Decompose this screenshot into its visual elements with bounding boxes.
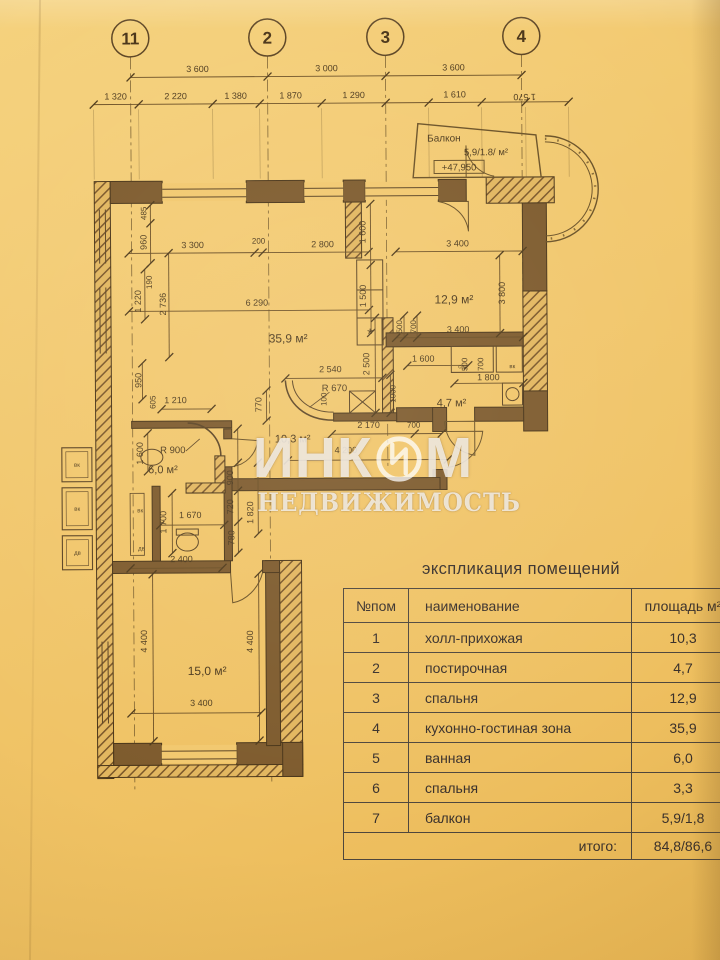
- dim-label: 1 820: [245, 501, 255, 524]
- dim-label: 960: [138, 235, 148, 250]
- axis-number: 2: [263, 29, 273, 48]
- radius-label-r900: R 900: [160, 445, 185, 456]
- explication-row: 7балкон5,9/1,8: [344, 803, 720, 833]
- balcony-label: Балкон: [427, 133, 461, 144]
- dim-label: 3 800: [497, 282, 507, 305]
- dim-label: 500: [395, 320, 404, 334]
- room-area: 10,3: [632, 623, 720, 653]
- entrance-door: [447, 431, 483, 467]
- room-area: 5,9/1,8: [632, 803, 720, 833]
- dim-line: [149, 570, 158, 745]
- dim-line: [90, 98, 573, 109]
- room-number: 1: [344, 623, 409, 653]
- room-area: 12,9: [632, 683, 720, 713]
- room-explication: экспликация помещений №помнаименованиепл…: [343, 560, 699, 860]
- dim-label: 700: [476, 357, 485, 371]
- room-number: 5: [344, 743, 409, 773]
- dim-label: 3 000: [315, 63, 338, 73]
- dim-line: [366, 200, 375, 337]
- axis-bubble-2: 2: [249, 19, 286, 56]
- washing-machine-drum: [506, 388, 519, 401]
- explication-header-row: №помнаименованиеплощадь м²: [344, 589, 720, 623]
- dim-label: 1 610: [443, 89, 466, 99]
- dim-label: 700: [409, 319, 418, 333]
- dim-line: [284, 455, 452, 464]
- room-number: 2: [344, 653, 409, 683]
- dim-label: 1 670: [179, 510, 202, 520]
- dim-label: 200: [252, 237, 266, 246]
- room-name: кухонно-гостиная зона: [409, 713, 632, 743]
- room-area: 3,3: [632, 773, 720, 803]
- room-number: 4: [344, 713, 409, 743]
- dim-label: 950: [133, 373, 143, 388]
- explication-row: 4кухонно-гостиная зона35,9: [344, 713, 720, 743]
- room-number: 7: [344, 803, 409, 833]
- dim-label: 780: [226, 530, 236, 545]
- room-area-bath: 6,0 м²: [148, 464, 178, 476]
- room-number: 3: [344, 683, 409, 713]
- dim-label: 2 170: [357, 420, 380, 430]
- dim-line: [168, 489, 176, 557]
- dim-label: 4 400: [139, 630, 149, 653]
- dim-label: 900: [225, 470, 235, 485]
- explication-table: №помнаименованиеплощадь м² 1холл-прихожа…: [343, 588, 720, 860]
- dim-label: 485: [139, 206, 148, 220]
- dim-label: 4 400: [245, 630, 255, 653]
- level-mark: +47,950: [442, 162, 477, 173]
- dim-label: 2 220: [164, 91, 187, 101]
- axis-number: 4: [517, 27, 527, 46]
- dim-label: 1 320: [104, 91, 127, 101]
- cabinet-label: вк: [509, 364, 515, 370]
- toilet: [176, 533, 198, 551]
- dim-label: 770: [253, 397, 263, 412]
- room-number: 6: [344, 773, 409, 803]
- dim-label: 3 400: [446, 238, 469, 248]
- dim-label: 3 400: [447, 324, 470, 334]
- scanned-floor-plan-sheet: { "plan": { "axes": [ {"label":"11","x":…: [0, 0, 720, 960]
- extension-lines: [94, 107, 569, 180]
- bath-door: [232, 439, 258, 467]
- dim-label: 1 500: [358, 285, 368, 308]
- dim-label: 3 600: [442, 62, 465, 72]
- dim-label: 2 800: [311, 239, 334, 249]
- dim-label: 1 570: [513, 92, 536, 102]
- room-name: спальня: [409, 773, 632, 803]
- dim-label: 1 220: [133, 290, 143, 313]
- shaft-label: вк: [137, 508, 143, 514]
- dim-line: [254, 459, 262, 538]
- explication-header-0: №пом: [344, 589, 409, 623]
- dim-label: 6 290: [246, 298, 269, 308]
- dim-line: [328, 429, 446, 438]
- dim-line: [158, 405, 216, 413]
- explication-header-1: наименование: [409, 589, 632, 623]
- explication-title: экспликация помещений: [343, 560, 699, 579]
- room-area-bedroom2: 15,0 м²: [188, 664, 227, 678]
- dim-label: 2 500: [361, 353, 371, 376]
- axis-number: 3: [381, 28, 391, 47]
- room-name: спальня: [409, 683, 632, 713]
- r900-leader: [186, 439, 200, 451]
- dim-label: 720: [225, 499, 235, 514]
- dim-label: 3 300: [181, 240, 204, 250]
- shaft-label: дв: [138, 546, 145, 552]
- total-label: итого:: [344, 833, 632, 860]
- dim-label: 2 540: [319, 364, 342, 374]
- room-area-bedroom: 12,9 м²: [434, 292, 473, 306]
- room-area: 35,9: [632, 713, 720, 743]
- balcony-area: 5,9/1.8/ м²: [464, 147, 508, 158]
- explication-row: 6спальня3,3: [344, 773, 720, 803]
- dim-label: 2 400: [170, 554, 193, 564]
- dim-label: 1 600: [357, 221, 367, 244]
- explication-row: 5ванная6,0: [344, 743, 720, 773]
- axis-bubble-4: 4: [503, 17, 540, 54]
- room-name: холл-прихожая: [409, 623, 632, 653]
- shaft-label: вк: [74, 463, 80, 469]
- dim-label: 1 600: [135, 442, 145, 465]
- axis-number: 11: [121, 29, 139, 48]
- dim-label: 605: [148, 395, 157, 409]
- dim-label: 1000: [388, 384, 397, 402]
- stove-symbol: *: [367, 326, 373, 343]
- total-value: 84,8/86,6: [632, 833, 720, 860]
- dim-label: 1 600: [412, 354, 435, 364]
- cabinet-label: св: [458, 364, 464, 370]
- room-area-hall: 10,3 м²: [275, 433, 311, 445]
- laundry-door: [445, 421, 475, 455]
- dim-line: [255, 570, 264, 745]
- axis-bubble-3: 3: [367, 18, 404, 55]
- dim-line: [125, 248, 373, 258]
- dim-label: 190: [145, 275, 154, 289]
- room-area: 6,0: [632, 743, 720, 773]
- axis-bubbles-layer: 11234: [112, 17, 540, 57]
- shaft-label: вк: [74, 507, 80, 513]
- dim-label: 700: [407, 421, 421, 430]
- explication-row: 3спальня12,9: [344, 683, 720, 713]
- axis-bubble-11: 11: [112, 20, 149, 57]
- dim-label: 3 600: [186, 64, 209, 74]
- dim-label: 4 200: [335, 445, 358, 455]
- room-name: ванная: [409, 743, 632, 773]
- explication-total-row: итого:84,8/86,6: [344, 833, 720, 860]
- dim-label: 1 870: [279, 90, 302, 100]
- dim-label: 1 700: [158, 511, 168, 534]
- explication-row: 2постирочная4,7: [344, 653, 720, 683]
- bedroom-balcony-door-swing: [438, 201, 468, 231]
- shaft-label: дв: [74, 551, 81, 557]
- toilet-tank: [176, 529, 198, 535]
- room-name: постирочная: [409, 653, 632, 683]
- dim-label: 100: [319, 392, 328, 406]
- explication-header-2: площадь м²: [632, 589, 720, 623]
- room-area-laundry: 4,7 м²: [437, 397, 467, 409]
- dim-line: [127, 709, 265, 718]
- dim-label: 3 400: [190, 698, 213, 708]
- room-area-kitchen-living: 35,9 м²: [269, 331, 308, 345]
- bedroom2-door: [231, 573, 263, 603]
- dim-label: 2 736: [158, 293, 168, 316]
- dim-label: 1 800: [477, 372, 500, 382]
- room-name: балкон: [409, 803, 632, 833]
- room-area: 4,7: [632, 653, 720, 683]
- dim-label: 1 210: [164, 395, 187, 405]
- explication-row: 1холл-прихожая10,3: [344, 623, 720, 653]
- dim-label: 1 380: [224, 91, 247, 101]
- dim-label: 1 290: [342, 90, 365, 100]
